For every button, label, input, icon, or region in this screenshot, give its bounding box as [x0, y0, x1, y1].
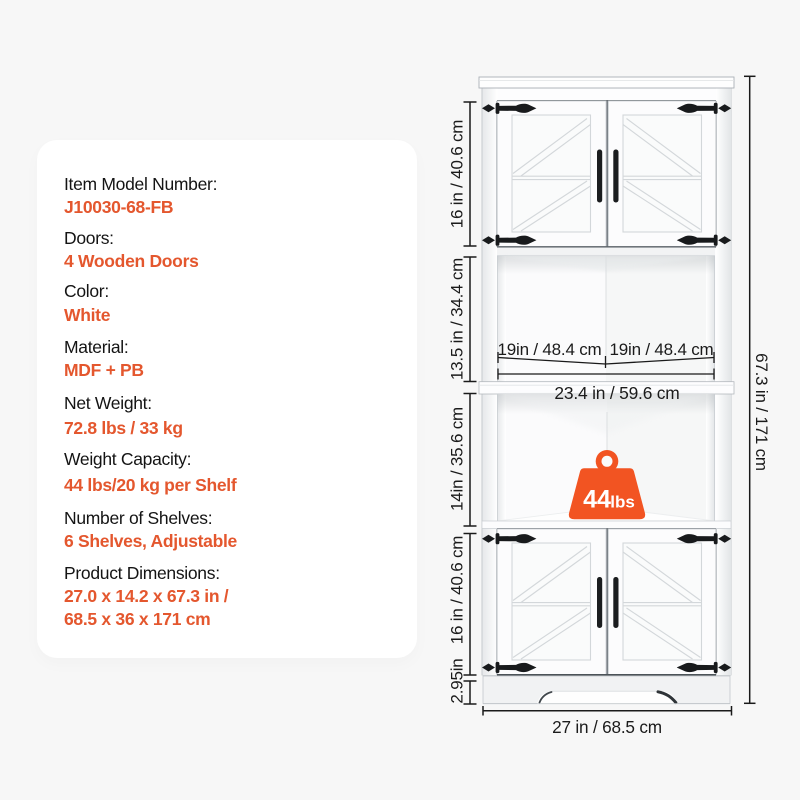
svg-text:67.3 in / 171 cm: 67.3 in / 171 cm: [752, 353, 771, 471]
svg-text:2.95in: 2.95in: [448, 658, 467, 703]
svg-text:13.5 in / 34.4 cm: 13.5 in / 34.4 cm: [448, 258, 467, 380]
svg-text:44: 44: [583, 486, 611, 514]
svg-text:16 in / 40.6 cm: 16 in / 40.6 cm: [448, 536, 467, 645]
svg-text:lbs: lbs: [610, 493, 635, 512]
svg-text:27 in / 68.5 cm: 27 in / 68.5 cm: [552, 717, 662, 737]
svg-text:19in / 48.4 cm: 19in / 48.4 cm: [610, 340, 714, 359]
svg-text:23.4 in / 59.6 cm: 23.4 in / 59.6 cm: [554, 383, 679, 403]
svg-text:14in / 35.6 cm: 14in / 35.6 cm: [448, 407, 467, 511]
svg-text:19in / 48.4 cm: 19in / 48.4 cm: [498, 340, 602, 359]
svg-text:16 in / 40.6 cm: 16 in / 40.6 cm: [448, 120, 467, 229]
